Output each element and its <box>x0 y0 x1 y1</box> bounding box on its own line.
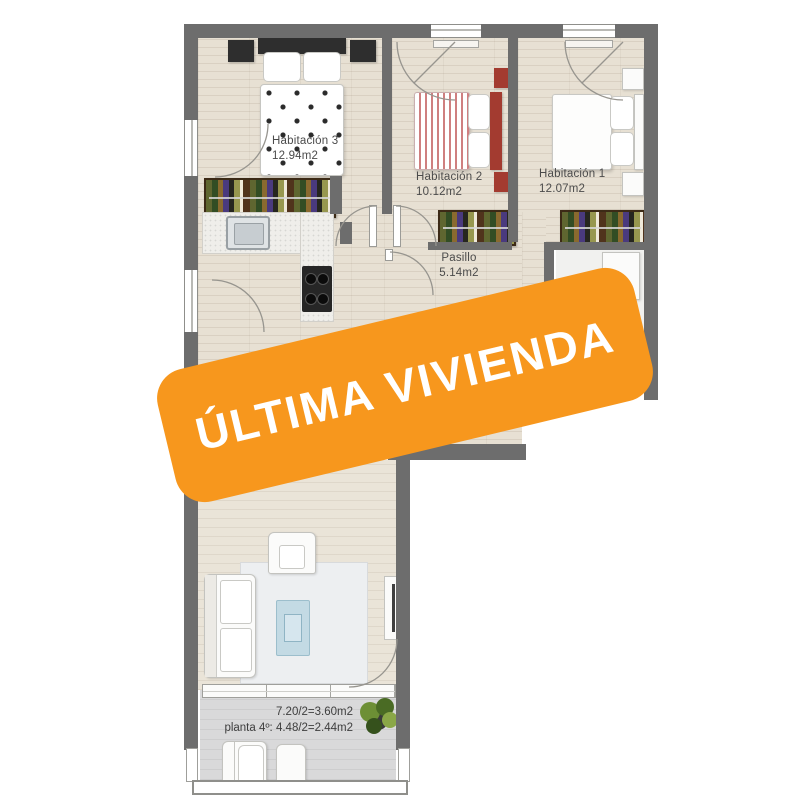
window-habitacion-1 <box>563 24 615 38</box>
pillow <box>303 52 341 82</box>
window-sill <box>565 40 613 48</box>
burner <box>317 293 329 305</box>
door-frame <box>393 205 401 247</box>
wall-below-hab1 <box>552 242 644 250</box>
window-habitacion-3 <box>184 120 198 176</box>
door-frame <box>385 249 393 261</box>
wall-left-lower <box>184 460 198 750</box>
nightstand <box>622 172 644 196</box>
sofa-backrest <box>205 575 217 677</box>
nightstand <box>622 68 644 90</box>
wardrobe-habitacion-1 <box>560 210 646 246</box>
bed-headboard <box>490 92 502 170</box>
burner <box>305 273 317 285</box>
plant-leaf <box>366 718 382 734</box>
room-area: 10.12m2 <box>416 185 482 200</box>
room-area: 12.07m2 <box>539 182 605 197</box>
double-bed-habitacion-2 <box>414 92 470 170</box>
room-name: Habitación 2 <box>416 170 482 185</box>
room-label-habitacion-2: Habitación 2 10.12m2 <box>416 170 482 200</box>
wardrobe-habitacion-2 <box>438 210 516 246</box>
coffee-table <box>276 600 310 656</box>
sliding-door <box>202 684 396 698</box>
pillow <box>610 96 634 130</box>
wall-below-hab2 <box>428 242 512 250</box>
nightstand <box>228 40 254 62</box>
room-label-habitacion-3: Habitación 3 12.94m2 <box>272 134 338 164</box>
bed-headboard <box>634 94 644 170</box>
burner <box>305 293 317 305</box>
terrace-railing <box>192 780 408 795</box>
plant-icon <box>358 698 400 740</box>
room-label-habitacion-1: Habitación 1 12.07m2 <box>539 167 605 197</box>
room-label-pasillo: Pasillo 5.14m2 <box>434 251 484 281</box>
sofa-cushion <box>220 580 252 624</box>
coffee-table-inner <box>284 614 302 642</box>
burner <box>317 273 329 285</box>
terrace-measure-line1: 7.20/2=3.60m2 <box>203 704 353 720</box>
room-name: Pasillo <box>434 251 484 266</box>
window-kitchen <box>184 270 198 332</box>
room-area: 12.94m2 <box>272 149 338 164</box>
cooktop-icon <box>302 266 332 312</box>
room-area: 5.14m2 <box>434 266 484 281</box>
terrace-measure-line2: planta 4º: 4.48/2=2.44m2 <box>203 720 353 736</box>
sofa <box>204 574 256 678</box>
armchair-cushion <box>279 545 305 569</box>
pillow <box>468 132 490 168</box>
pillow <box>610 132 634 166</box>
room-name: Habitación 3 <box>272 134 338 149</box>
armchair <box>268 532 316 574</box>
wall-stub-hallway <box>340 222 352 244</box>
kitchen-sink <box>226 216 270 250</box>
door-frame <box>369 205 377 247</box>
wall-hab2-hab1 <box>508 24 518 242</box>
wall-living-right <box>396 460 410 750</box>
terrace-measurements: 7.20/2=3.60m2 planta 4º: 4.48/2=2.44m2 <box>203 704 353 736</box>
terrace-railing-post <box>186 748 198 782</box>
terrace-railing-post <box>398 748 410 782</box>
floor-plan: Habitación 3 12.94m2 Habitación 2 10.12m… <box>0 0 800 800</box>
nightstand <box>350 40 376 62</box>
wall-hab3-hab2 <box>382 24 392 214</box>
window-habitacion-2 <box>431 24 481 38</box>
sofa-cushion <box>220 628 252 672</box>
tv-screen <box>392 584 395 632</box>
pillow <box>468 94 490 130</box>
pillow <box>263 52 301 82</box>
double-bed-habitacion-1 <box>552 94 612 170</box>
room-name: Habitación 1 <box>539 167 605 182</box>
sink-basin <box>234 223 264 245</box>
wall-wardrobe-cap <box>330 176 342 214</box>
window-sill <box>433 40 479 48</box>
